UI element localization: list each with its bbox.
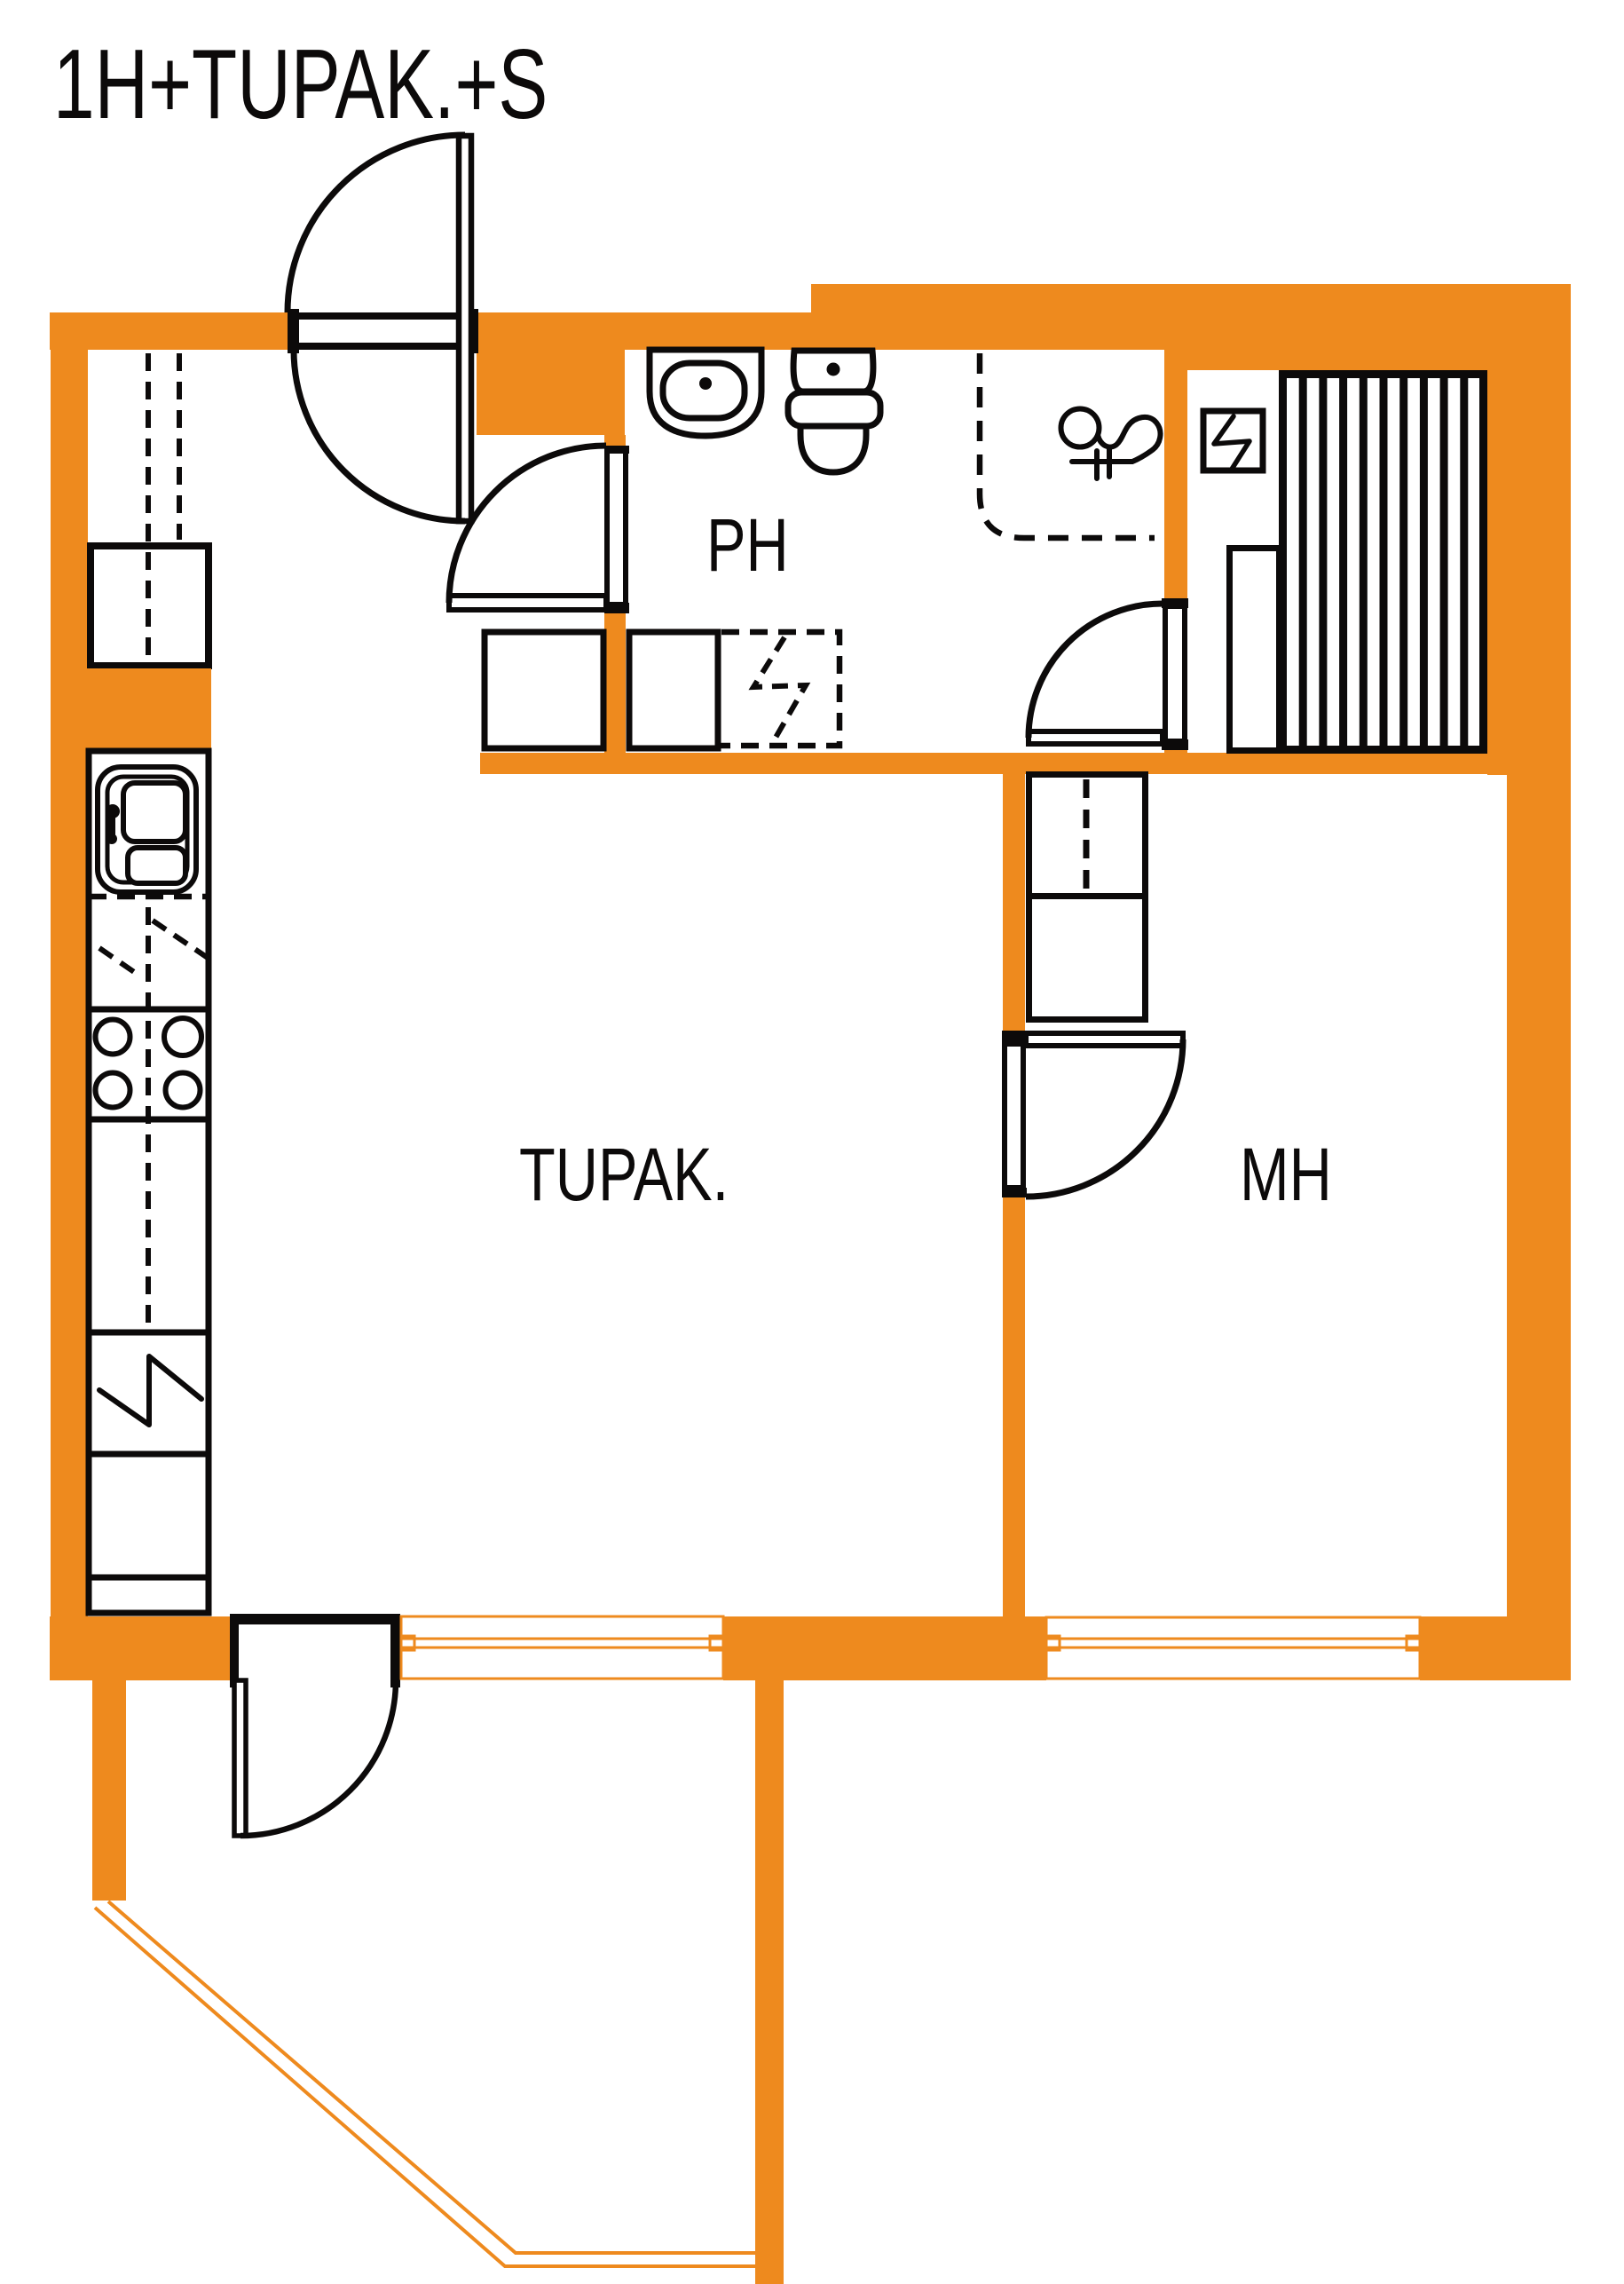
svg-text:1H+TUPAK.+S: 1H+TUPAK.+S (53, 29, 548, 139)
svg-text:PH: PH (706, 504, 789, 588)
svg-text:MH: MH (1240, 1134, 1332, 1217)
svg-text:TUPAK.: TUPAK. (519, 1134, 729, 1217)
